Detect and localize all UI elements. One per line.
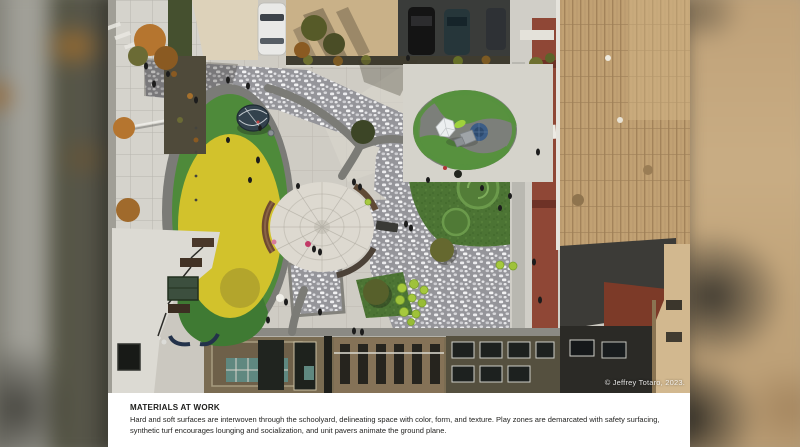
play-circle: [403, 64, 553, 182]
street-and-parking: [168, 0, 510, 68]
caption: MATERIALS AT WORK Hard and soft surfaces…: [108, 393, 690, 436]
blurred-backdrop-left: [0, 0, 122, 447]
planting-strip: [164, 56, 206, 154]
slide: © Jeffrey Totaro, 2023. MATERIALS AT WOR…: [108, 0, 690, 447]
caption-title: MATERIALS AT WORK: [130, 403, 670, 412]
photo-frame: © Jeffrey Totaro, 2023.: [108, 0, 690, 393]
bottom-buildings: [204, 328, 560, 393]
caption-body: Hard and soft surfaces are interwoven th…: [130, 415, 670, 436]
page: © Jeffrey Totaro, 2023. MATERIALS AT WOR…: [0, 0, 800, 447]
photo-credit: © Jeffrey Totaro, 2023.: [605, 378, 685, 387]
schoolyard-aerial-photo: [108, 0, 690, 393]
blurred-backdrop-right: [678, 0, 800, 447]
